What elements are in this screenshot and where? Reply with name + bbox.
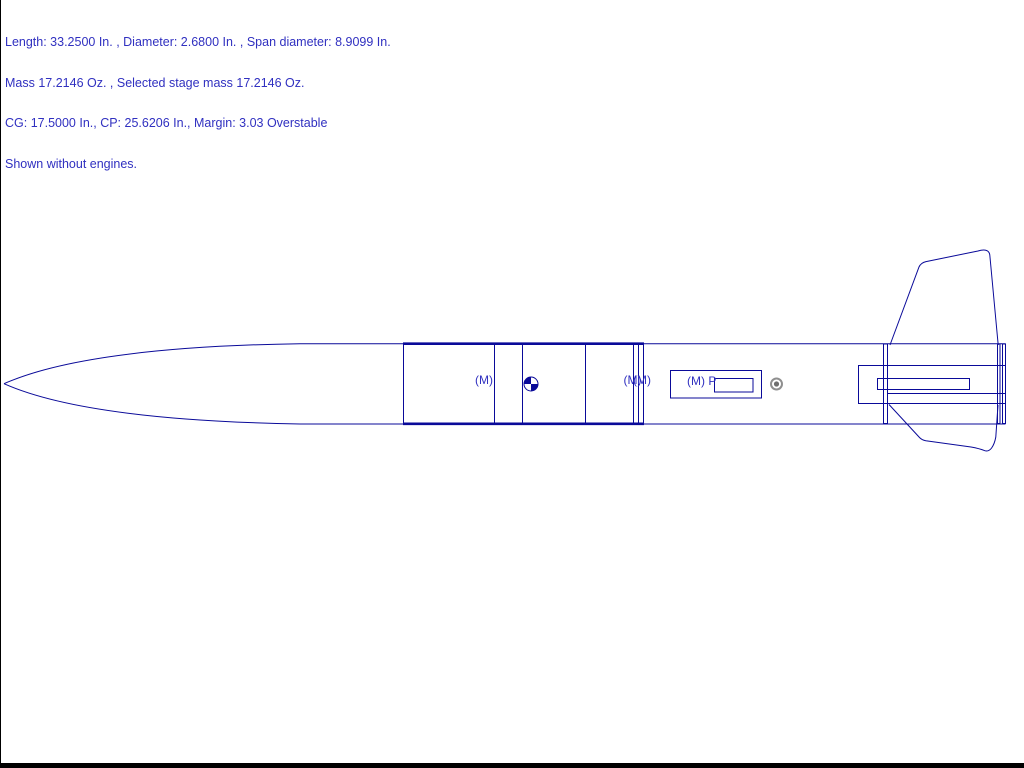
forward-centering-ring[interactable] (884, 344, 888, 424)
nose-cone-upper-curve[interactable] (4, 344, 300, 384)
mass-object-label-3: (M) (633, 373, 651, 387)
cp-symbol (771, 379, 782, 390)
fin-upper[interactable] (890, 250, 998, 345)
rocksim-design-canvas: Length: 33.2500 In. , Diameter: 2.6800 I… (0, 0, 1024, 768)
nose-cone-lower-curve[interactable] (4, 384, 300, 424)
rocket-side-view-diagram: (M) (M) (M) (M) P (0, 0, 1024, 768)
cg-symbol (524, 377, 538, 391)
fin-lower[interactable] (889, 405, 998, 451)
motor-mount-tube[interactable] (859, 366, 1006, 404)
parachute-packed-body[interactable] (715, 379, 754, 393)
parachute-label: (M) P (687, 374, 716, 388)
engine-hook[interactable] (878, 379, 970, 390)
aft-centering-ring-2[interactable] (1003, 344, 1006, 424)
window-bottom-border (0, 763, 1024, 768)
window-left-border (0, 0, 1, 768)
mass-object-label-1: (M) (475, 373, 493, 387)
